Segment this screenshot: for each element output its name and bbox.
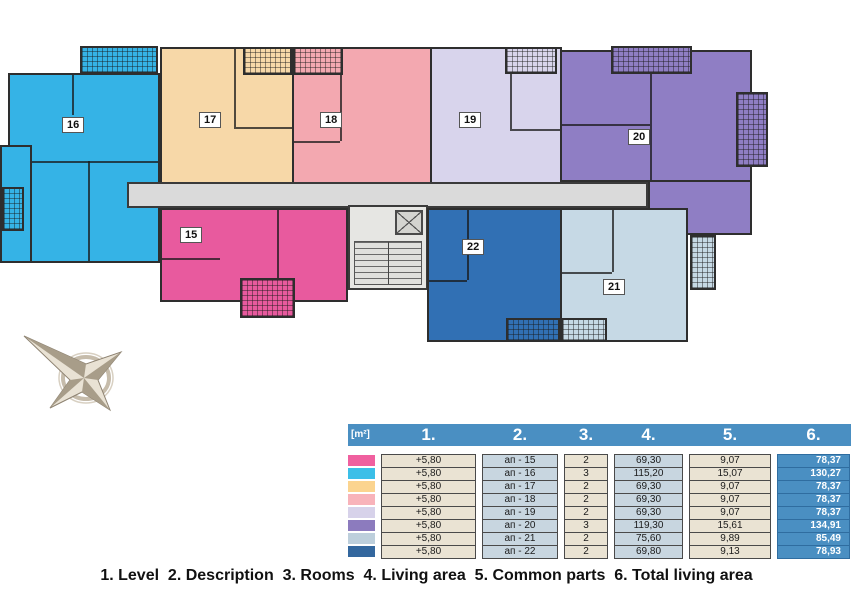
row-swatch <box>348 507 375 518</box>
row-description: ап - 15 <box>482 454 558 468</box>
row-level: +5,80 <box>381 480 476 494</box>
row-living-area: 69,30 <box>614 493 683 507</box>
row-common-parts: 15,07 <box>689 467 771 481</box>
elevator <box>395 210 423 235</box>
row-rooms: 2 <box>564 545 608 559</box>
row-level: +5,80 <box>381 506 476 520</box>
row-total-living-area: 130,27 <box>777 467 850 481</box>
balcony-apartment-18 <box>293 47 343 75</box>
interior-wall <box>510 129 560 131</box>
column-header-1: 1. <box>381 424 476 446</box>
interior-wall <box>10 161 158 163</box>
row-common-parts: 9,07 <box>689 454 771 468</box>
balcony-apartment-19 <box>505 47 557 74</box>
column-header-4: 4. <box>614 424 683 446</box>
table-row: +5,80 ап - 18 2 69,30 9,07 78,37 <box>348 493 851 507</box>
apartment-label-18: 18 <box>320 112 342 128</box>
interior-wall <box>562 124 650 126</box>
row-total-living-area: 78,93 <box>777 545 850 559</box>
column-header-2: 2. <box>482 424 558 446</box>
row-total-living-area: 78,37 <box>777 506 850 520</box>
row-common-parts: 9,07 <box>689 493 771 507</box>
row-living-area: 75,60 <box>614 532 683 546</box>
row-rooms: 2 <box>564 532 608 546</box>
row-level: +5,80 <box>381 532 476 546</box>
row-swatch <box>348 546 375 557</box>
row-swatch <box>348 481 375 492</box>
balcony-apartment-15 <box>240 278 295 318</box>
row-swatch <box>348 468 375 479</box>
table-row: +5,80 ап - 19 2 69,30 9,07 78,37 <box>348 506 851 520</box>
table-row: +5,80 ап - 15 2 69,30 9,07 78,37 <box>348 454 851 468</box>
legend-text: 1. Level 2. Description 3. Rooms 4. Livi… <box>0 567 853 585</box>
apartment-label-16: 16 <box>62 117 84 133</box>
apartment-label-17: 17 <box>199 112 221 128</box>
row-swatch <box>348 533 375 544</box>
row-common-parts: 9,07 <box>689 506 771 520</box>
row-rooms: 3 <box>564 467 608 481</box>
row-total-living-area: 134,91 <box>777 519 850 533</box>
row-rooms: 2 <box>564 480 608 494</box>
row-rooms: 3 <box>564 519 608 533</box>
stairs <box>354 241 422 285</box>
row-level: +5,80 <box>381 545 476 559</box>
row-description: ап - 16 <box>482 467 558 481</box>
balcony-apartment-20-top <box>611 46 692 74</box>
row-swatch <box>348 520 375 531</box>
row-total-living-area: 78,37 <box>777 480 850 494</box>
row-swatch <box>348 494 375 505</box>
row-level: +5,80 <box>381 493 476 507</box>
row-living-area: 69,80 <box>614 545 683 559</box>
interior-wall <box>294 141 340 143</box>
row-living-area: 69,30 <box>614 480 683 494</box>
interior-wall <box>234 127 292 129</box>
row-description: ап - 20 <box>482 519 558 533</box>
column-header-5: 5. <box>689 424 771 446</box>
balcony-apartment-21-right <box>690 235 716 290</box>
row-rooms: 2 <box>564 493 608 507</box>
apartment-label-15: 15 <box>180 227 202 243</box>
table-row: +5,80 ап - 22 2 69,80 9,13 78,93 <box>348 545 851 559</box>
row-common-parts: 9,07 <box>689 480 771 494</box>
table-header: [m²] 1. 2. 3. 4. 5. 6. <box>348 424 851 446</box>
floor-plan-page: 16 17 18 19 20 15 22 21 [m²] 1. 2. 3. 4.… <box>0 0 853 600</box>
table-row: +5,80 ап - 16 3 115,20 15,07 130,27 <box>348 467 851 481</box>
interior-wall <box>612 210 614 272</box>
apartment-label-21: 21 <box>603 279 625 295</box>
interior-wall <box>88 161 90 261</box>
interior-wall <box>162 258 220 260</box>
interior-wall <box>234 49 236 127</box>
column-header-6: 6. <box>777 424 850 446</box>
row-description: ап - 17 <box>482 480 558 494</box>
row-total-living-area: 78,37 <box>777 454 850 468</box>
balcony-apartment-17 <box>243 47 292 75</box>
table-row: +5,80 ап - 20 3 119,30 15,61 134,91 <box>348 519 851 533</box>
row-common-parts: 15,61 <box>689 519 771 533</box>
row-swatch <box>348 455 375 466</box>
row-level: +5,80 <box>381 467 476 481</box>
row-rooms: 2 <box>564 506 608 520</box>
floor-plan: 16 17 18 19 20 15 22 21 <box>0 0 853 420</box>
row-living-area: 119,30 <box>614 519 683 533</box>
row-common-parts: 9,13 <box>689 545 771 559</box>
balcony-apartment-16-left <box>2 187 24 231</box>
balcony-apartment-20-right <box>736 92 768 167</box>
row-common-parts: 9,89 <box>689 532 771 546</box>
unit-label: [m²] <box>348 424 375 446</box>
row-description: ап - 19 <box>482 506 558 520</box>
compass-rose-icon <box>20 328 140 423</box>
area-table: [m²] 1. 2. 3. 4. 5. 6. +5,80 ап - 15 2 6… <box>348 424 851 559</box>
apartment-label-19: 19 <box>459 112 481 128</box>
area-table-body: +5,80 ап - 15 2 69,30 9,07 78,37 +5,80 а… <box>348 454 851 559</box>
apartment-label-20: 20 <box>628 129 650 145</box>
table-row: +5,80 ап - 17 2 69,30 9,07 78,37 <box>348 480 851 494</box>
row-living-area: 69,30 <box>614 454 683 468</box>
table-row: +5,80 ап - 21 2 75,60 9,89 85,49 <box>348 532 851 546</box>
interior-wall <box>72 75 74 115</box>
balcony-apartment-21-bottom <box>561 318 607 342</box>
row-level: +5,80 <box>381 519 476 533</box>
apartment-label-22: 22 <box>462 239 484 255</box>
row-rooms: 2 <box>564 454 608 468</box>
interior-wall <box>562 272 612 274</box>
row-level: +5,80 <box>381 454 476 468</box>
row-total-living-area: 78,37 <box>777 493 850 507</box>
column-header-3: 3. <box>564 424 608 446</box>
row-description: ап - 18 <box>482 493 558 507</box>
row-description: ап - 21 <box>482 532 558 546</box>
balcony-apartment-16-top <box>80 46 158 74</box>
balcony-apartment-22 <box>506 318 560 342</box>
row-total-living-area: 85,49 <box>777 532 850 546</box>
row-living-area: 115,20 <box>614 467 683 481</box>
row-living-area: 69,30 <box>614 506 683 520</box>
interior-wall <box>429 280 467 282</box>
stairwell <box>348 205 428 290</box>
row-description: ап - 22 <box>482 545 558 559</box>
